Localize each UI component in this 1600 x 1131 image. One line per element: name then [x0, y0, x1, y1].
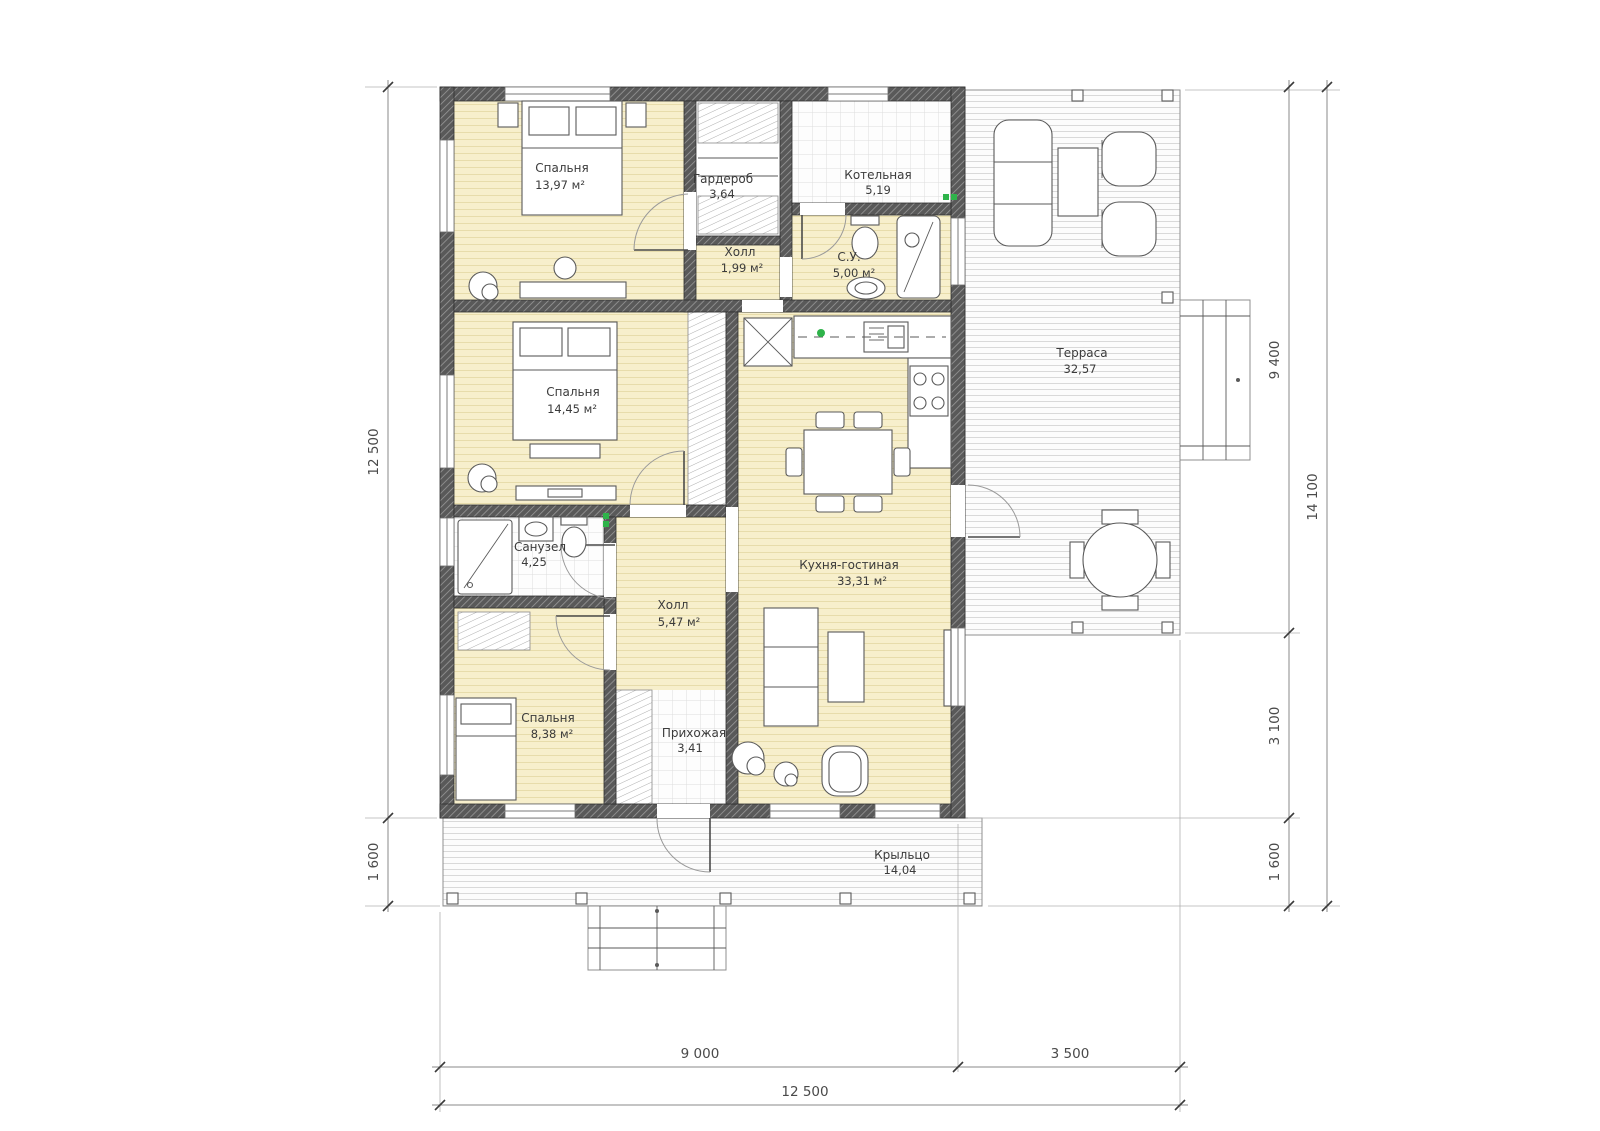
shower-symbol-bathroom [458, 520, 512, 594]
dim-right-mid: 3 100 [1267, 707, 1283, 746]
armchair-symbol [822, 746, 868, 796]
terrace-sofa-symbol [994, 120, 1052, 246]
label-terrace: Терраса [1055, 346, 1107, 360]
window [505, 87, 610, 101]
label-bedroom3: Спальня [521, 711, 574, 725]
area-hall1: 1,99 м² [721, 261, 764, 275]
floor-plan-drawing: Спальня 13,97 м² Гардероб 3,64 Котельная… [0, 0, 1600, 1131]
label-bedroom1: Спальня [535, 161, 588, 175]
area-boiler: 5,19 [865, 183, 891, 197]
area-bathroom: 4,25 [521, 555, 547, 569]
porch-deck [443, 818, 982, 906]
stove-symbol [910, 366, 948, 416]
terrace-chair-symbol [1102, 132, 1156, 186]
label-hall2: Холл [658, 598, 689, 612]
label-boiler: Котельная [844, 168, 911, 182]
window [505, 804, 575, 818]
window [875, 804, 940, 818]
area-bedroom2: 14,45 м² [547, 402, 597, 416]
dim-bottom-terrace: 3 500 [1051, 1046, 1090, 1062]
plant-symbol [468, 464, 497, 492]
dim-left-porch: 1 600 [366, 843, 382, 882]
closet-symbol-bedroom3 [458, 612, 530, 650]
plant-symbol [469, 272, 498, 300]
sink-symbol-bathroom [519, 517, 553, 541]
area-entry: 3,41 [677, 741, 703, 755]
label-entry: Прихожая [662, 726, 726, 740]
area-kitchen: 33,31 м² [837, 574, 887, 588]
dim-bottom-main: 9 000 [681, 1046, 720, 1062]
dim-right-terrace: 9 400 [1267, 341, 1283, 380]
dim-right-porch: 1 600 [1267, 843, 1283, 882]
terrace-table-symbol [1058, 148, 1098, 216]
dresser-symbol-bedroom2 [516, 486, 616, 500]
floor-plan-page: Вариант 2 [0, 0, 1600, 1131]
shower-symbol-su [897, 216, 940, 298]
coffee-table-symbol [828, 632, 864, 702]
bed-symbol-bedroom3 [456, 698, 516, 800]
closet-bedroom2 [688, 312, 726, 505]
window [828, 87, 888, 101]
label-su: С.У. [837, 250, 860, 264]
label-kitchen: Кухня-гостиная [799, 558, 899, 572]
label-wardrobe: Гардероб [693, 172, 753, 186]
closet-entry [616, 690, 652, 804]
label-hall1: Холл [725, 245, 756, 259]
area-su: 5,00 м² [833, 266, 876, 280]
dim-right-total: 14 100 [1305, 473, 1321, 520]
area-bedroom3: 8,38 м² [531, 727, 574, 741]
dim-left-total: 12 500 [366, 428, 382, 475]
window [440, 695, 454, 775]
label-bedroom2: Спальня [546, 385, 599, 399]
area-wardrobe: 3,64 [709, 187, 735, 201]
window [440, 518, 454, 566]
area-porch: 14,04 [884, 863, 917, 877]
area-terrace: 32,57 [1064, 362, 1097, 376]
window [951, 218, 965, 285]
tv-symbol [944, 630, 951, 706]
sink-symbol-su [847, 277, 885, 299]
label-bathroom: Санузел [514, 540, 566, 554]
terrace-chair-symbol [1102, 202, 1156, 256]
area-bedroom1: 13,97 м² [535, 178, 585, 192]
window [440, 140, 454, 232]
dim-bottom-total: 12 500 [781, 1084, 828, 1100]
label-porch: Крыльцо [874, 848, 930, 862]
window [440, 375, 454, 468]
area-hall2: 5,47 м² [658, 615, 701, 629]
fridge-symbol [744, 318, 792, 366]
sofa-symbol [764, 608, 818, 726]
window [951, 628, 965, 706]
window [770, 804, 840, 818]
